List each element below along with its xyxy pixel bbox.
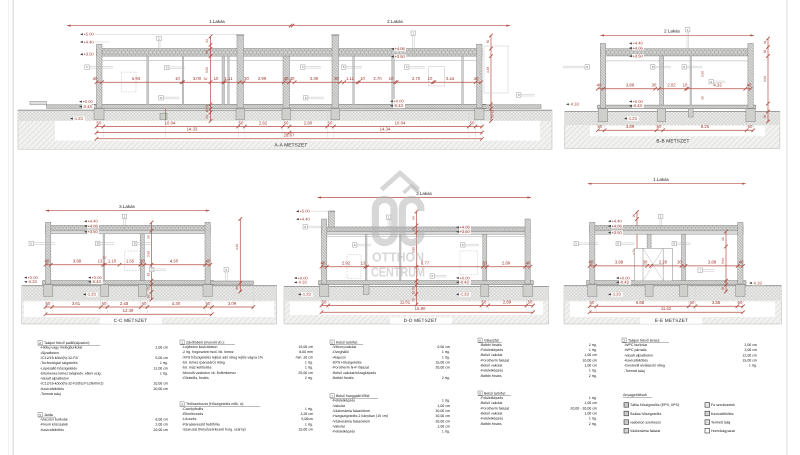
svg-text:-1.23: -1.23	[628, 116, 638, 121]
svg-text:+3.50: +3.50	[88, 229, 99, 234]
svg-text:1 rtg.: 1 rtg.	[749, 364, 757, 368]
svg-text:+5.00: +5.00	[300, 209, 311, 214]
svg-text:12.39: 12.39	[123, 308, 134, 313]
svg-text:10: 10	[205, 109, 209, 113]
svg-text:50: 50	[470, 120, 475, 125]
svg-text:40: 40	[290, 76, 295, 81]
svg-text:-WPC burkolat: -WPC burkolat	[624, 343, 647, 347]
svg-text:12,00 cm: 12,00 cm	[153, 366, 168, 370]
svg-text:1.11: 1.11	[225, 76, 234, 81]
svg-text:6,00 cm: 6,00 cm	[155, 418, 168, 422]
svg-text:3.09: 3.09	[228, 301, 237, 306]
svg-text:-Porotherm falazat: -Porotherm falazat	[480, 406, 509, 410]
svg-text:-Felületképzés: -Felületképzés	[480, 369, 503, 373]
svg-text:1 rtg.: 1 rtg.	[305, 366, 313, 370]
svg-text:-Felületképzés: -Felületképzés	[480, 396, 503, 400]
svg-text:2.80: 2.80	[304, 120, 313, 125]
svg-text:15,00 cm: 15,00 cm	[435, 361, 450, 365]
svg-text:-0.43: -0.43	[92, 279, 102, 284]
svg-text:3.88: 3.88	[708, 260, 717, 265]
svg-text:2 rtg.: 2 rtg.	[305, 376, 313, 380]
svg-text:+4.06: +4.06	[612, 223, 623, 228]
svg-text:10: 10	[175, 76, 180, 81]
svg-text:3.50: 3.50	[146, 251, 150, 257]
svg-text:20: 20	[632, 214, 636, 218]
svg-text:2 rtg.: 2 rtg.	[589, 343, 597, 347]
svg-text:10: 10	[103, 256, 107, 260]
svg-text:-0.43: -0.43	[394, 103, 404, 108]
svg-text:-Glettelés, festés: -Glettelés, festés	[182, 376, 209, 380]
svg-text:-/C12/16-köbö(h)-32-F2/(fszl=1: -/C12/16-köbö(h)-32-F2/(fszl=12N/mm2)	[40, 382, 103, 386]
svg-text:10.04: 10.04	[165, 120, 176, 125]
svg-text:11.42: 11.42	[661, 306, 672, 311]
svg-text:0,50 cm: 0,50 cm	[437, 345, 450, 349]
svg-text:10: 10	[411, 291, 415, 295]
svg-text:+5.00: +5.00	[84, 32, 95, 37]
svg-text:1 rtg.: 1 rtg.	[305, 407, 313, 411]
svg-text:8,00 mm: 8,00 mm	[299, 350, 313, 354]
svg-text:+4.06: +4.06	[633, 45, 644, 50]
svg-text:2 Lakás: 2 Lakás	[664, 29, 681, 34]
svg-text:40: 40	[321, 261, 326, 266]
svg-text:30: 30	[334, 76, 339, 81]
svg-text:3.50: 3.50	[721, 258, 725, 264]
svg-text:8.25: 8.25	[701, 124, 710, 129]
svg-text:-Felületképzés: -Felületképzés	[332, 399, 355, 403]
svg-text:3.61: 3.61	[72, 301, 81, 306]
svg-text:-Termett talaj: -Termett talaj	[624, 369, 645, 373]
svg-text:3,00 cm: 3,00 cm	[744, 348, 757, 352]
svg-text:1 rtg.: 1 rtg.	[160, 371, 168, 375]
svg-text:50: 50	[142, 301, 147, 306]
svg-text:40: 40	[284, 76, 289, 81]
svg-text:-Porotherm falazat: -Porotherm falazat	[480, 358, 509, 362]
svg-text:50: 50	[46, 301, 51, 306]
svg-text:20,00 cm: 20,00 cm	[153, 428, 168, 432]
svg-text:2.48: 2.48	[120, 301, 129, 306]
svg-text:Szálas hőszigetelés: Szálas hőszigetelés	[630, 412, 662, 416]
svg-text:50: 50	[657, 124, 662, 129]
svg-text:40: 40	[739, 260, 744, 265]
svg-text:2.26: 2.26	[659, 260, 668, 265]
svg-text:1.11: 1.11	[346, 76, 355, 81]
svg-text:-1.23: -1.23	[74, 116, 84, 121]
svg-text:-bit. máz kellősítés: -bit. máz kellősítés	[182, 366, 212, 370]
svg-text:Talajon fekvő terasz:: Talajon fekvő terasz:	[628, 338, 660, 342]
svg-text:5,00 cm: 5,00 cm	[155, 356, 168, 360]
svg-text:62: 62	[146, 273, 150, 277]
svg-text:30: 30	[643, 260, 648, 265]
svg-text:40: 40	[45, 259, 50, 264]
svg-text:-Finom kőzúzalék: -Finom kőzúzalék	[40, 423, 68, 427]
svg-text:1 rtg.: 1 rtg.	[442, 350, 450, 354]
svg-text:-Technológiai szigetelés: -Technológiai szigetelés	[40, 361, 78, 365]
svg-text:40: 40	[747, 83, 752, 88]
svg-text:-Alapozó: -Alapozó	[332, 355, 346, 359]
svg-text:-0.33: -0.33	[28, 279, 38, 284]
svg-text:-1.23: -1.23	[460, 292, 470, 297]
svg-text:15,00 cm: 15,00 cm	[298, 345, 313, 349]
svg-text:-Monolit vasbeton vb. födémlem: -Monolit vasbeton vb. födémlemez	[182, 371, 236, 375]
svg-text:1 rtg.: 1 rtg.	[442, 430, 450, 434]
svg-text:3.89: 3.89	[626, 124, 635, 129]
svg-text:30: 30	[140, 259, 145, 264]
svg-text:10: 10	[389, 76, 394, 81]
svg-text:1,00 cm: 1,00 cm	[584, 401, 597, 405]
svg-text:Fa szerkezetek: Fa szerkezetek	[711, 403, 735, 407]
svg-text:-Kavicsfeltöltés: -Kavicsfeltöltés	[40, 428, 64, 432]
svg-text:50: 50	[748, 124, 753, 129]
svg-text:2.70: 2.70	[373, 76, 382, 81]
svg-text:Homokágyazat: Homokágyazat	[711, 429, 735, 433]
svg-text:-0.43: -0.43	[633, 103, 643, 108]
svg-text:50: 50	[239, 120, 244, 125]
svg-text:Kavicsfeltöltés: Kavicsfeltöltés	[711, 412, 734, 416]
svg-text:30,00 cm: 30,00 cm	[435, 366, 450, 370]
svg-text:-Lépésálló hőszigetelés: -Lépésálló hőszigetelés	[40, 366, 77, 370]
svg-text:4.40: 4.40	[235, 244, 239, 250]
svg-text:1.Lakás: 1.Lakás	[209, 19, 226, 24]
svg-text:2.99: 2.99	[258, 76, 267, 81]
svg-text:35: 35	[721, 287, 725, 291]
svg-text:-Hangszigetelés 2 irányban (15: -Hangszigetelés 2 irányban (15 cm)	[332, 414, 388, 418]
svg-text:50: 50	[411, 227, 415, 231]
svg-text:3.44: 3.44	[446, 76, 455, 81]
svg-text:30: 30	[652, 83, 657, 88]
svg-text:-Felületképzés: -Felületképzés	[332, 430, 355, 434]
svg-text:-1.23: -1.23	[302, 292, 312, 297]
svg-text:vasbeton szerkezet: vasbeton szerkezet	[630, 420, 661, 424]
svg-text:2,00 cm: 2,00 cm	[155, 423, 168, 427]
svg-text:Belső tartófal:: Belső tartófal:	[484, 391, 506, 395]
svg-text:40: 40	[474, 76, 479, 81]
svg-text:1,00 cm: 1,00 cm	[584, 412, 597, 416]
svg-text:Talajon fekvő padló(aljzaton):: Talajon fekvő padló(aljzaton):	[44, 341, 90, 345]
svg-text:10: 10	[360, 76, 365, 81]
svg-text:30: 30	[244, 76, 249, 81]
svg-text:-1.23: -1.23	[612, 292, 622, 297]
svg-text:-1.23: -1.23	[87, 292, 97, 297]
svg-text:Anyagjelölések: Anyagjelölések	[623, 393, 647, 397]
svg-text:-0.33: -0.33	[753, 280, 763, 285]
svg-text:28.67: 28.67	[284, 133, 295, 138]
svg-text:2.92: 2.92	[342, 261, 351, 266]
svg-text:50: 50	[328, 120, 333, 125]
svg-text:-0.33: -0.33	[570, 102, 580, 107]
svg-text:-Viacolor burkolat: -Viacolor burkolat	[40, 418, 68, 422]
svg-text:50: 50	[598, 124, 603, 129]
svg-text:3.50: 3.50	[205, 67, 209, 73]
svg-text:C-C METSZET: C-C METSZET	[114, 318, 148, 323]
svg-text:56: 56	[763, 50, 767, 54]
svg-text:50: 50	[206, 301, 211, 306]
svg-text:1.Lakás: 1.Lakás	[653, 177, 670, 182]
svg-text:+3.50: +3.50	[395, 54, 406, 59]
svg-text:1,00 cm: 1,00 cm	[584, 364, 597, 368]
svg-text:40: 40	[589, 260, 594, 265]
svg-text:2.89: 2.89	[503, 299, 512, 304]
svg-text:-Beltéri festés: -Beltéri festés	[480, 343, 502, 347]
svg-text:2 rtg.: 2 rtg.	[589, 422, 597, 426]
svg-text:-Beltéri festés: -Beltéri festés	[480, 374, 502, 378]
svg-text:-0.43: -0.43	[460, 280, 470, 285]
svg-text:3.88: 3.88	[615, 260, 624, 265]
svg-text:1 rtg.: 1 rtg.	[442, 355, 450, 359]
svg-text:E-E METSZET: E-E METSZET	[655, 318, 688, 323]
svg-text:-WPC párnafa: -WPC párnafa	[624, 348, 646, 352]
svg-text:20,00 - 30,00 cm: 20,00 - 30,00 cm	[570, 406, 597, 410]
svg-text:2,00 cm: 2,00 cm	[155, 346, 168, 350]
svg-text:50: 50	[738, 300, 743, 305]
svg-text:10,00 cm: 10,00 cm	[153, 382, 168, 386]
svg-text:70+51: 70+51	[491, 109, 495, 118]
svg-text:-Porotherm N+F falazat: -Porotherm N+F falazat	[332, 366, 369, 370]
svg-text:90: 90	[721, 237, 725, 241]
svg-text:50: 50	[322, 299, 327, 304]
svg-text:-Belső vakolat: -Belső vakolat	[480, 364, 502, 368]
svg-text:1.10: 1.10	[108, 259, 117, 264]
svg-text:Járda: Járda	[44, 413, 53, 417]
svg-text:75: 75	[411, 298, 415, 302]
svg-text:+3.50: +3.50	[612, 230, 623, 235]
svg-text:-Geotextil elválasztó réteg: -Geotextil elválasztó réteg	[624, 364, 665, 368]
svg-text:-Vakolat: -Vakolat	[332, 404, 345, 408]
svg-text:min. 20 cm: min. 20 cm	[296, 355, 313, 359]
svg-text:-Beltéri festés: -Beltéri festés	[332, 376, 354, 380]
svg-text:30,00 cm: 30,00 cm	[435, 419, 450, 423]
svg-text:-Vázkerámia falazóelem: -Vázkerámia falazóelem	[332, 419, 370, 423]
svg-text:-Kavicsfeltöltés: -Kavicsfeltöltés	[40, 387, 64, 391]
svg-text:4.50: 4.50	[170, 259, 179, 264]
svg-text:-Ellenlécezés: -Ellenlécezés	[182, 412, 203, 416]
svg-text:+3.60: +3.60	[460, 229, 471, 234]
svg-text:Belső hanggátló főfal:: Belső hanggátló főfal:	[336, 394, 370, 398]
svg-text:70: 70	[411, 287, 415, 291]
svg-text:-Lejtbeton kavicsbeton: -Lejtbeton kavicsbeton	[182, 345, 218, 349]
svg-text:4.30: 4.30	[172, 301, 181, 306]
svg-text:2 rtg.: 2 rtg.	[589, 374, 597, 378]
svg-text:-Üveghálló: -Üveghálló	[332, 350, 349, 354]
svg-text:-Belső vakolat;hézagképzés: -Belső vakolat;hézagképzés	[332, 371, 376, 375]
svg-text:10.04: 10.04	[395, 120, 406, 125]
svg-text:15,00 cm: 15,00 cm	[298, 428, 313, 432]
svg-text:2,00 cm: 2,00 cm	[744, 343, 757, 347]
svg-text:Vázkerámia falazat: Vázkerámia falazat	[630, 429, 660, 433]
svg-text:Tetőszerkezet (Hőszigetelés né: Tetőszerkezet (Hőszigetelés nélk. ü):	[186, 402, 244, 406]
svg-text:-Vázkerámia falazóelem: -Vázkerámia falazóelem	[332, 409, 370, 413]
svg-text:B-B METSZET: B-B METSZET	[656, 139, 689, 144]
svg-text:1 rtg.: 1 rtg.	[589, 348, 597, 352]
svg-text:52: 52	[204, 77, 208, 81]
svg-text:-Vasalt aljzatbeton: -Vasalt aljzatbeton	[40, 377, 69, 381]
svg-text:1 rtg.: 1 rtg.	[589, 369, 597, 373]
svg-text:6.88: 6.88	[636, 300, 645, 305]
svg-text:-Szaruzat (fenyőszerkezeti hor: -Szaruzat (fenyőszerkezeti horg. szárny)	[182, 428, 246, 432]
svg-text:-0.33: -0.33	[298, 280, 308, 285]
svg-text:50: 50	[690, 300, 695, 305]
svg-text:50: 50	[102, 301, 107, 306]
svg-text:14.34: 14.34	[380, 127, 391, 132]
svg-text:12,00 cm: 12,00 cm	[742, 353, 757, 357]
svg-text:3.88: 3.88	[73, 259, 82, 264]
svg-text:+3.50: +3.50	[633, 54, 644, 59]
svg-text:-Hideg vagy melegburkolat: -Hideg vagy melegburkolat	[40, 346, 82, 350]
svg-text:-Lécezés: -Lécezés	[182, 417, 197, 421]
svg-text:-Páraáteresztő fedőfólia: -Páraáteresztő fedőfólia	[182, 422, 220, 426]
svg-text:+3.50: +3.50	[84, 52, 95, 57]
svg-text:-Belső vakolat: -Belső vakolat	[480, 401, 502, 405]
svg-text:-Felületképzés: -Felületképzés	[480, 348, 503, 352]
svg-text:-Vékonyvakolat: -Vékonyvakolat	[332, 345, 356, 349]
svg-text:1,00 cm: 1,00 cm	[437, 424, 450, 428]
svg-text:1.55: 1.55	[126, 259, 135, 264]
svg-text:3.39: 3.39	[310, 76, 319, 81]
svg-text:10: 10	[146, 295, 150, 299]
svg-text:-EPS Hőszigetelés: -EPS Hőszigetelés	[332, 361, 362, 365]
svg-text:30,00 cm: 30,00 cm	[435, 409, 450, 413]
svg-text:+4.06: +4.06	[395, 46, 406, 51]
svg-text:OTTHON: OTTHON	[372, 250, 424, 265]
svg-text:50: 50	[486, 40, 490, 44]
svg-text:10: 10	[214, 76, 219, 81]
svg-text:3.50: 3.50	[763, 76, 767, 82]
svg-text:-bitumenes lemez talajnedv. el: -bitumenes lemez talajnedv. elleni szig.	[40, 371, 101, 375]
svg-text:-0.43: -0.43	[83, 104, 93, 109]
svg-text:-Felületképzés: -Felületképzés	[480, 417, 503, 421]
svg-text:Zárófödém (monolit vb.):: Zárófödém (monolit vb.):	[186, 340, 225, 344]
svg-text:1,00 cm: 1,00 cm	[584, 353, 597, 357]
svg-text:50: 50	[590, 300, 595, 305]
svg-text:1,00 cm: 1,00 cm	[437, 404, 450, 408]
svg-text:2.70: 2.70	[412, 76, 421, 81]
svg-text:4.48: 4.48	[486, 67, 490, 73]
svg-text:20,00 cm: 20,00 cm	[153, 387, 168, 391]
svg-text:40: 40	[597, 83, 602, 88]
svg-text:Külső tartófal:: Külső tartófal:	[336, 340, 358, 344]
svg-text:34: 34	[205, 39, 209, 43]
svg-text:-Cserépfedés: -Cserépfedés	[182, 407, 204, 411]
svg-text:+4.06: +4.06	[88, 223, 99, 228]
svg-text:10: 10	[683, 83, 688, 88]
svg-text:30: 30	[677, 260, 682, 265]
svg-text:CENTRUM: CENTRUM	[371, 265, 425, 280]
svg-text:-XPS hőszigetelés lejtést adó: -XPS hőszigetelés lejtést adó réteg lejt…	[182, 355, 264, 359]
svg-text:2 rtg.: 2 rtg.	[442, 376, 450, 380]
svg-text:2.02: 2.02	[667, 83, 676, 88]
svg-text:A-A METSZET: A-A METSZET	[275, 142, 308, 147]
svg-text:30: 30	[482, 261, 487, 266]
svg-text:1 rtg.: 1 rtg.	[589, 396, 597, 400]
svg-text:13: 13	[361, 261, 366, 266]
svg-text:-Aljzatbeton: -Aljzatbeton	[40, 351, 59, 355]
svg-text:1 rtg.: 1 rtg.	[305, 361, 313, 365]
svg-text:-Belső vakolat: -Belső vakolat	[480, 412, 502, 416]
svg-text:+4.40: +4.40	[300, 217, 311, 222]
svg-text:-Vasalt aljzatbeton: -Vasalt aljzatbeton	[624, 353, 653, 357]
svg-text:5.93: 5.93	[132, 76, 141, 81]
svg-text:40: 40	[93, 76, 98, 81]
svg-text:+4.40: +4.40	[84, 39, 95, 44]
svg-text:-bit. lemez (párazáró) réteg: -bit. lemez (párazáró) réteg	[182, 361, 225, 365]
svg-text:1 rtg.: 1 rtg.	[305, 422, 313, 426]
svg-text:50: 50	[97, 120, 102, 125]
svg-text:1 rtg.: 1 rtg.	[442, 399, 450, 403]
svg-text:52: 52	[205, 115, 209, 119]
svg-text:Tábla hőszigetelés (EPS, XPS): Tábla hőszigetelés (EPS, XPS)	[630, 403, 679, 407]
svg-text:D-D METSZET: D-D METSZET	[404, 318, 438, 323]
svg-text:10,00 cm: 10,00 cm	[582, 358, 597, 362]
svg-text:40: 40	[206, 259, 211, 264]
svg-text:-Belső vakolat: -Belső vakolat	[480, 353, 502, 357]
svg-text:90: 90	[146, 235, 150, 239]
svg-text:1 rtg.: 1 rtg.	[589, 417, 597, 421]
svg-text:-/C12/16-köbö(h)-32-F2/: -/C12/16-köbö(h)-32-F2/	[40, 356, 78, 360]
svg-text:30,00 cm: 30,00 cm	[435, 414, 450, 418]
svg-text:15.80: 15.80	[415, 306, 426, 311]
svg-text:94: 94	[411, 216, 415, 220]
svg-text:11.61: 11.61	[400, 299, 411, 304]
svg-text:50: 50	[482, 299, 487, 304]
svg-text:3.89: 3.89	[626, 83, 635, 88]
svg-text:3.Lakás: 3.Lakás	[119, 204, 136, 209]
svg-text:3.00: 3.00	[193, 76, 202, 81]
svg-text:1 rtg.: 1 rtg.	[160, 361, 168, 365]
svg-text:70: 70	[205, 105, 209, 109]
svg-text:-0.43: -0.43	[620, 280, 630, 285]
svg-text:25,00 cm: 25,00 cm	[298, 371, 313, 375]
svg-text:-Beltéri festés: -Beltéri festés	[480, 422, 502, 426]
svg-text:3,26 cm: 3,26 cm	[300, 412, 313, 416]
svg-text:-Termett talaj: -Termett talaj	[40, 392, 61, 396]
svg-text:14.33: 14.33	[187, 127, 198, 132]
svg-text:5,00cm: 5,00cm	[301, 417, 313, 421]
svg-text:90: 90	[701, 96, 705, 100]
svg-text:56: 56	[205, 50, 209, 54]
svg-text:70: 70	[146, 287, 150, 291]
svg-text:-Vakolat: -Vakolat	[332, 424, 345, 428]
svg-text:50: 50	[284, 120, 289, 125]
svg-text:Válaszfal:: Válaszfal:	[484, 338, 499, 342]
svg-text:2.82: 2.82	[259, 120, 268, 125]
svg-text:-Kavicsfeltöltés: -Kavicsfeltöltés	[624, 359, 648, 363]
svg-text:10: 10	[428, 76, 433, 81]
svg-text:15,00 cm: 15,00 cm	[742, 359, 757, 363]
svg-text:Termett talaj: Termett talaj	[711, 420, 731, 424]
svg-text:4.33: 4.33	[713, 83, 722, 88]
svg-text:35: 35	[763, 115, 767, 119]
svg-text:2.89: 2.89	[502, 261, 511, 266]
svg-text:40: 40	[526, 261, 531, 266]
svg-text:-2 rtg. hegesztett mod. bit. l: -2 rtg. hegesztett mod. bit. lemez	[182, 350, 234, 354]
svg-text:30: 30	[235, 286, 239, 290]
svg-text:34: 34	[763, 41, 767, 45]
svg-text:50: 50	[528, 299, 533, 304]
svg-text:3.88: 3.88	[712, 300, 721, 305]
svg-text:2.Lakás: 2.Lakás	[387, 19, 404, 24]
svg-text:3.50: 3.50	[701, 71, 705, 77]
